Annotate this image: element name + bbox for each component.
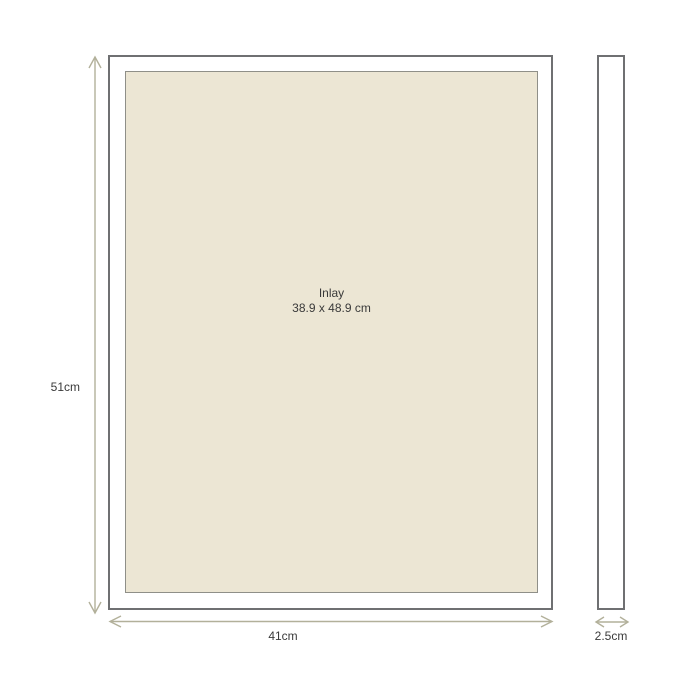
inlay-area: Inlay 38.9 x 48.9 cm xyxy=(125,71,538,593)
height-dimension-label: 51cm xyxy=(40,380,80,394)
height-dimension-arrow-icon xyxy=(86,54,104,616)
width-dimension-label: 41cm xyxy=(265,629,301,643)
inlay-dimensions: 38.9 x 48.9 cm xyxy=(126,301,537,316)
frame-front-view: Inlay 38.9 x 48.9 cm xyxy=(108,55,553,610)
inlay-label: Inlay xyxy=(126,286,537,301)
inlay-label-block: Inlay 38.9 x 48.9 cm xyxy=(126,286,537,316)
frame-dimension-diagram: Inlay 38.9 x 48.9 cm 51cm 41cm 2.5cm xyxy=(0,0,700,700)
depth-dimension-arrow-icon xyxy=(592,614,632,630)
depth-dimension-label: 2.5cm xyxy=(590,629,632,643)
width-dimension-arrow-icon xyxy=(106,613,556,630)
frame-side-view xyxy=(597,55,625,610)
